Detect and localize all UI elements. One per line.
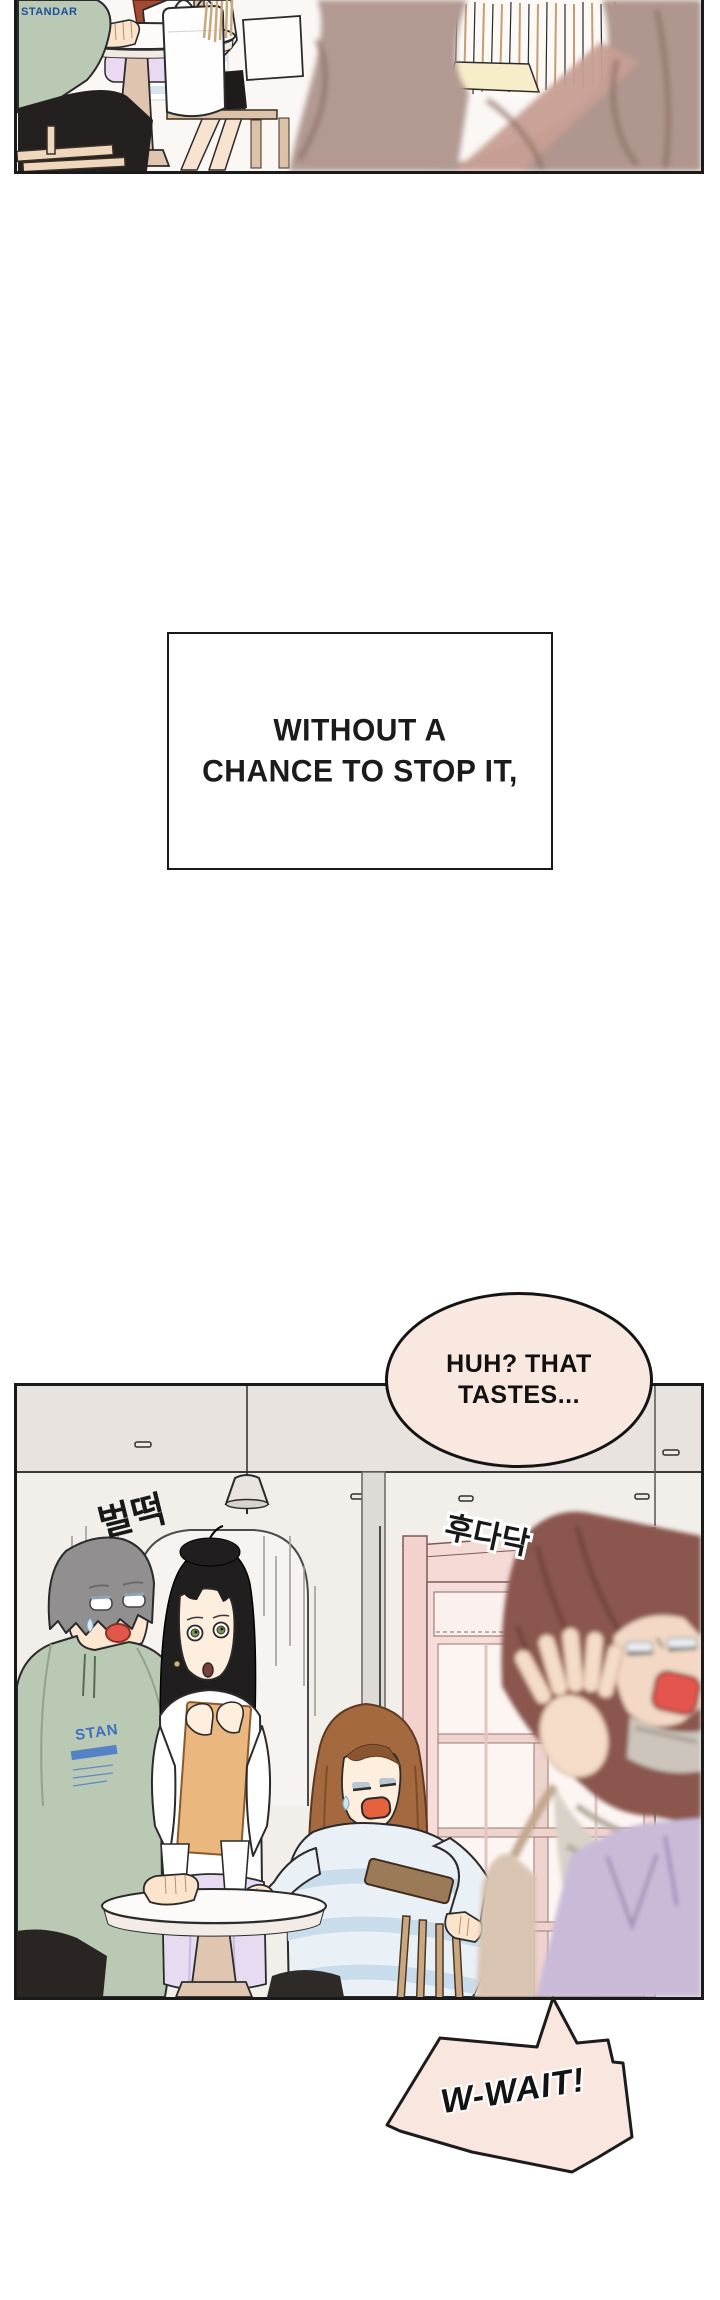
narration-caption: WITHOUT A CHANCE TO STOP IT, (167, 632, 553, 870)
chair-back (243, 16, 303, 80)
dark-lap (267, 1970, 344, 1997)
chair-leg (251, 120, 261, 168)
speech-bubble-huh: HUH? THAT TASTES... (385, 1292, 653, 1468)
panel-main-artwork (17, 1386, 701, 1997)
caption-line-1: WITHOUT A (273, 709, 446, 752)
comic-panel-main: STAN 벌떡 후다닥 (14, 1383, 704, 2000)
huh-line-2: TASTES... (458, 1380, 580, 1411)
comic-panel-top: STANDAR (14, 0, 704, 174)
chair-leg (279, 118, 289, 168)
caption-line-2: CHANCE TO STOP IT, (202, 750, 518, 793)
panel-top-artwork (17, 0, 701, 171)
wall-pillar (362, 1472, 385, 1722)
huh-line-1: HUH? THAT (446, 1349, 592, 1380)
webtoon-page: STANDAR WITHOUT A CHANCE TO STOP IT, HUH… (0, 0, 720, 2300)
poster-text: STANDAR (21, 6, 77, 18)
